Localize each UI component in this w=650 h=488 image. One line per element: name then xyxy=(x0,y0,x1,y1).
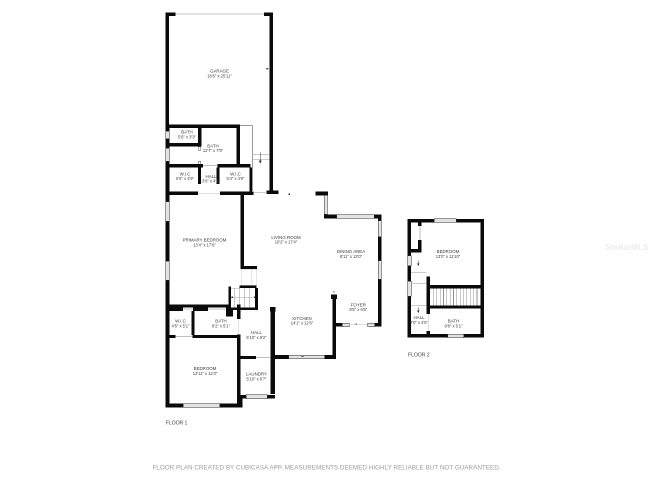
svg-text:FLOOR PLAN CREATED BY CUBICASA: FLOOR PLAN CREATED BY CUBICASA APP. MEAS… xyxy=(152,464,500,471)
svg-text:5'10" x 9'2": 5'10" x 9'2" xyxy=(246,335,267,340)
svg-text:™: ™ xyxy=(635,251,638,255)
svg-text:FLOOR 1: FLOOR 1 xyxy=(166,421,188,427)
svg-text:8'2" x 5'1": 8'2" x 5'1" xyxy=(212,323,230,328)
svg-text:5'10" x 6'7": 5'10" x 6'7" xyxy=(246,377,267,382)
svg-text:14'1" x 12'6": 14'1" x 12'6" xyxy=(291,321,314,326)
svg-text:5'6" x 4'9": 5'6" x 4'9" xyxy=(176,176,194,181)
svg-text:13'4" x 17'0": 13'4" x 17'0" xyxy=(193,242,216,247)
svg-text:8'11" x 13'0": 8'11" x 13'0" xyxy=(340,254,363,259)
svg-text:18'6" x 25'11": 18'6" x 25'11" xyxy=(207,74,232,79)
svg-text:StellarMLS: StellarMLS xyxy=(605,243,649,252)
svg-text:5'4" x 4'9": 5'4" x 4'9" xyxy=(227,176,245,181)
svg-text:5'6" x 3'3": 5'6" x 3'3" xyxy=(178,134,196,139)
svg-text:FLOOR 2: FLOOR 2 xyxy=(408,353,430,359)
svg-text:10'2" x 17'4": 10'2" x 17'4" xyxy=(275,240,298,245)
svg-text:13'0" x 11'10": 13'0" x 11'10" xyxy=(436,254,461,259)
svg-text:12'11" x 12'3": 12'11" x 12'3" xyxy=(193,371,218,376)
svg-text:4'5" x 5'1": 4'5" x 5'1" xyxy=(172,323,190,328)
svg-text:8'5" x 6'5": 8'5" x 6'5" xyxy=(349,307,367,312)
svg-text:9'8" x 5'1": 9'8" x 5'1" xyxy=(445,324,463,329)
svg-text:12'7" x 7'9": 12'7" x 7'9" xyxy=(203,148,224,153)
svg-text:2'0" x 4'5": 2'0" x 4'5" xyxy=(410,320,428,325)
svg-text:3'6" x 4'9": 3'6" x 4'9" xyxy=(202,178,220,183)
